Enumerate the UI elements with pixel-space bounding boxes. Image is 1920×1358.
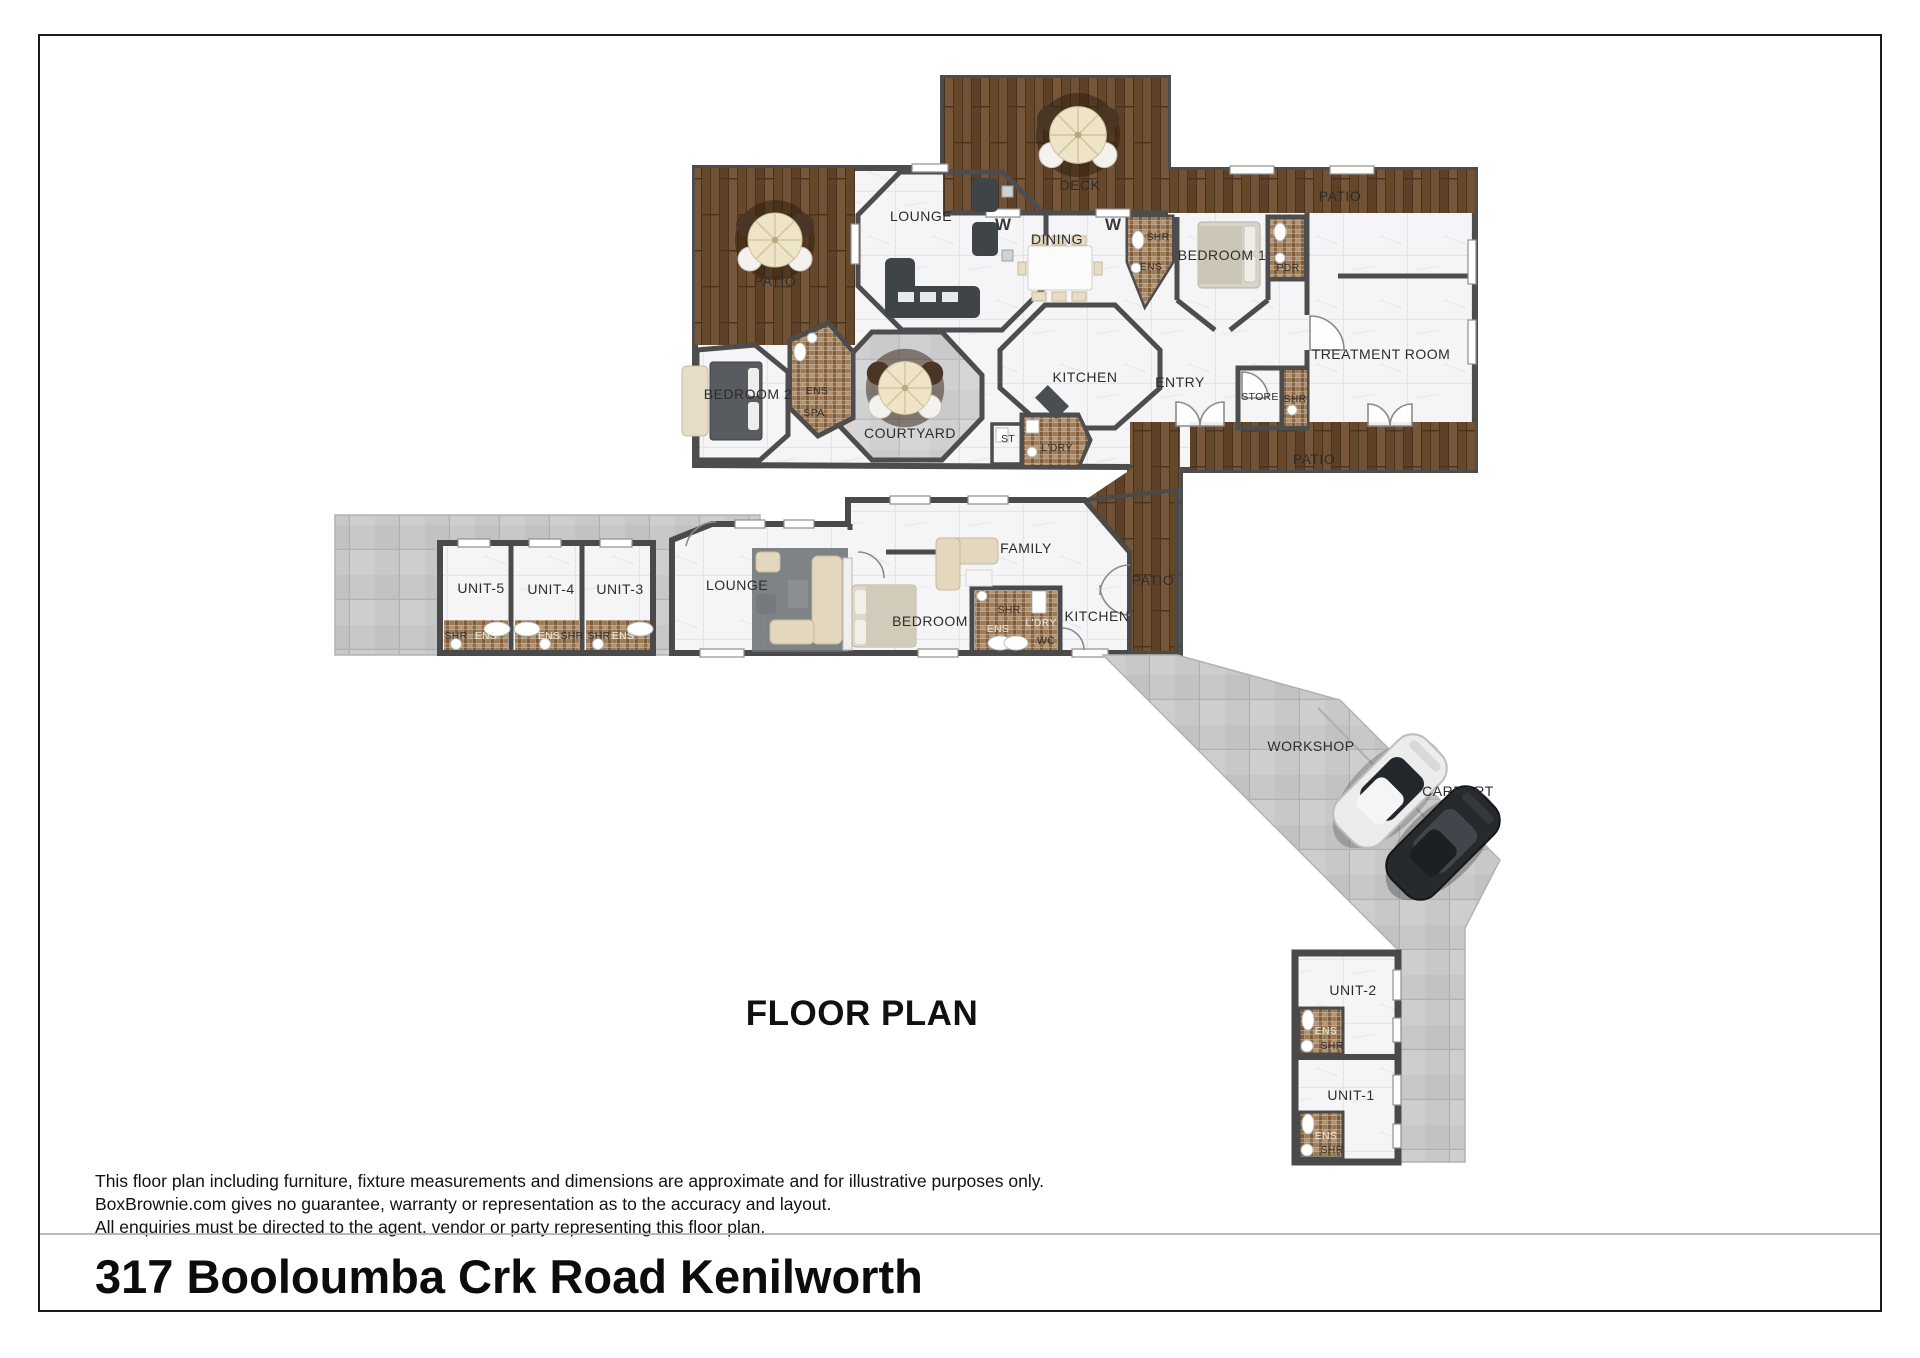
label-kitchen-main: KITCHEN <box>1053 369 1118 385</box>
label-u5-shr: SHR <box>444 630 467 642</box>
units345-windows <box>458 539 632 547</box>
label-wc: WC <box>1037 635 1055 647</box>
label-unit5: UNIT-5 <box>457 580 504 596</box>
label-ldry2: L'DRY <box>1025 617 1056 629</box>
family-sofa <box>936 538 998 590</box>
page-title: FLOOR PLAN <box>612 994 1112 1034</box>
label-u2-ens: ENS <box>1315 1025 1338 1037</box>
label-unit3: UNIT-3 <box>596 581 643 597</box>
label-u5-ens: ENS <box>475 630 498 642</box>
label-patio-top-left: PATIO <box>754 273 796 289</box>
label-courtyard: COURTYARD <box>864 425 956 441</box>
umbrella-table-icon <box>866 349 944 427</box>
lounge2-sofa-set <box>752 548 848 652</box>
floorplan-drawing: DECK PATIO LOUNGE DINING W W SHR ENS BED… <box>0 0 1920 1358</box>
window-symbol: W <box>1105 215 1122 234</box>
label-treatment-room: TREATMENT ROOM <box>1312 346 1451 362</box>
label-unit2: UNIT-2 <box>1329 982 1376 998</box>
label-ens-spa: ENS <box>806 385 829 397</box>
label-u4-shr: SHR <box>560 630 583 642</box>
label-unit1: UNIT-1 <box>1327 1087 1374 1103</box>
disclaimer-line: BoxBrownie.com gives no guarantee, warra… <box>95 1193 1044 1216</box>
label-kitchen2: KITCHEN <box>1065 608 1130 624</box>
label-entry: ENTRY <box>1155 374 1205 390</box>
label-patio-top-right: PATIO <box>1319 188 1361 204</box>
label-ldry-main: L'DRY <box>1041 442 1072 454</box>
window-symbol: W <box>995 215 1012 234</box>
label-dining: DINING <box>1031 231 1083 247</box>
label-workshop: WORKSHOP <box>1267 738 1354 754</box>
umbrella-table-icon <box>735 200 815 280</box>
address-divider <box>40 1233 1880 1235</box>
label-deck: DECK <box>1060 177 1101 193</box>
umbrella-table-icon <box>1036 93 1120 177</box>
label-lounge2: LOUNGE <box>706 577 768 593</box>
label-u2-shr: SHR <box>1320 1040 1343 1052</box>
label-patio2: PATIO <box>1132 572 1174 588</box>
label-u1-shr: SHR <box>1320 1144 1343 1156</box>
label-shr-store: SHR <box>1283 393 1306 405</box>
second-house: UNIT-5 UNIT-4 UNIT-3 SHR ENS ENS SHR SHR… <box>335 470 1177 657</box>
label-ens2: ENS <box>987 623 1010 635</box>
address-title: 317 Booloumba Crk Road Kenilworth <box>95 1249 923 1304</box>
label-pdr: PDR <box>1276 262 1299 274</box>
label-shr-dining: SHR <box>1146 231 1169 243</box>
units12: UNIT-2 UNIT-1 ENS SHR ENS SHR <box>1295 953 1401 1162</box>
disclaimer-line: All enquiries must be directed to the ag… <box>95 1216 1044 1239</box>
label-u1-ens: ENS <box>1315 1130 1338 1142</box>
label-u4-ens: ENS <box>538 630 561 642</box>
label-lounge-main: LOUNGE <box>890 208 952 224</box>
label-store: STORE <box>1241 391 1278 403</box>
label-unit4: UNIT-4 <box>527 581 574 597</box>
disclaimer-line: This floor plan including furniture, fix… <box>95 1170 1044 1193</box>
disclaimer-text: This floor plan including furniture, fix… <box>95 1170 1044 1239</box>
label-carport: CARPORT <box>1422 783 1494 799</box>
label-spa: SPA <box>803 407 824 419</box>
label-ens-dining: ENS <box>1140 261 1163 273</box>
label-bedroom2: BEDROOM 2 <box>704 386 793 402</box>
label-bedroom3: BEDROOM <box>892 613 968 629</box>
label-bedroom1: BEDROOM 1 <box>1178 247 1267 263</box>
label-shr2: SHR <box>997 604 1020 616</box>
label-st: ST <box>1001 433 1015 445</box>
label-patio-bottom: PATIO <box>1293 451 1335 467</box>
floorplan-page: DECK PATIO LOUNGE DINING W W SHR ENS BED… <box>0 0 1920 1358</box>
label-u3-shr: SHR <box>587 630 610 642</box>
label-family: FAMILY <box>1000 540 1052 556</box>
label-u3-ens: ENS <box>612 630 635 642</box>
